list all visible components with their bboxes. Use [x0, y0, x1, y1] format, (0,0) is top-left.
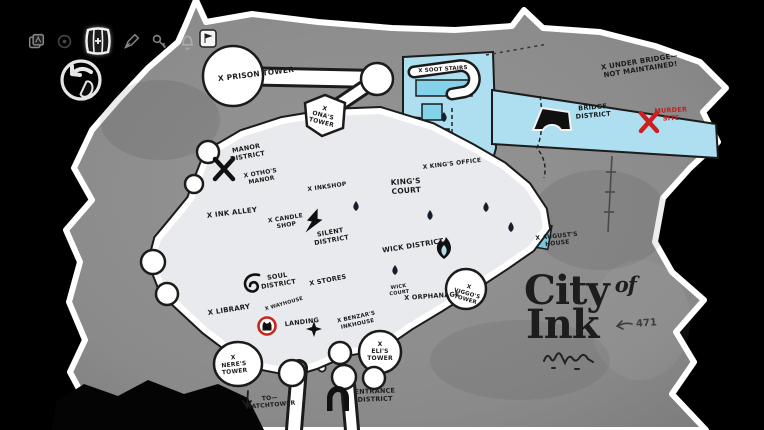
wall-tower: [156, 283, 178, 305]
prison-tower-circle: [203, 46, 263, 106]
map-title: Cityof Ink: [524, 272, 694, 343]
wall-tower: [141, 250, 165, 274]
entrance-gate-tower: [332, 365, 356, 389]
title-of: of: [615, 272, 636, 297]
game-map-screen: X Prison TowerX Ona's TowerManor Distric…: [0, 0, 764, 430]
title-line2: Ink: [526, 307, 694, 343]
map-annotation: 471: [636, 317, 658, 329]
map-icon[interactable]: [84, 26, 112, 56]
wall-tower: [185, 175, 203, 193]
player-location-marker: [259, 318, 276, 335]
viggos-tower-circle: [446, 269, 486, 309]
elis-tower-circle: [359, 331, 401, 373]
key-icon[interactable]: [151, 33, 168, 50]
onas-tower-badge: [305, 95, 345, 136]
wall-tower: [361, 63, 393, 95]
prison-tower-stamp-badge[interactable]: [200, 30, 216, 47]
map-canvas: [0, 0, 764, 430]
bell-icon[interactable]: [179, 33, 196, 50]
entrance-gate-tower: [363, 367, 385, 389]
back-button[interactable]: [57, 57, 107, 107]
journal-icon[interactable]: [28, 33, 45, 50]
pen-icon[interactable]: [123, 33, 140, 50]
wall-tower: [279, 360, 305, 386]
neres-tower-circle: [214, 342, 262, 386]
back-arrow-icon: [72, 66, 91, 75]
toolbar: [28, 26, 196, 56]
compass-icon[interactable]: [56, 33, 73, 50]
wall-tower: [329, 342, 351, 364]
